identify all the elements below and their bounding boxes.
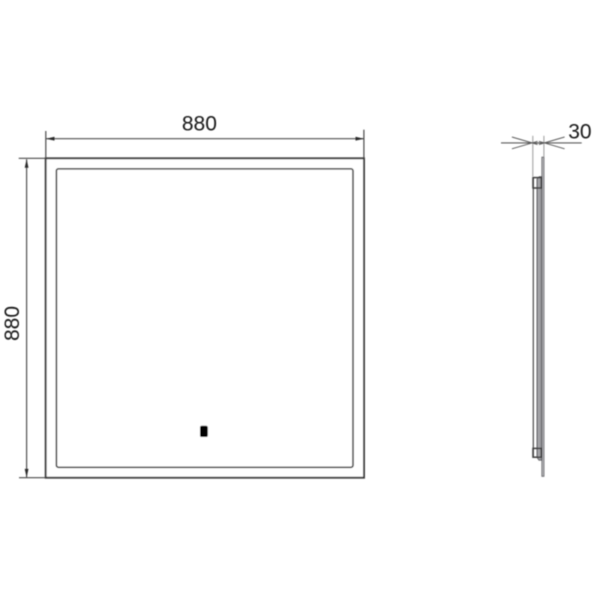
svg-text:30: 30 — [568, 120, 591, 143]
svg-text:880: 880 — [1, 306, 24, 341]
svg-text:880: 880 — [182, 113, 217, 136]
